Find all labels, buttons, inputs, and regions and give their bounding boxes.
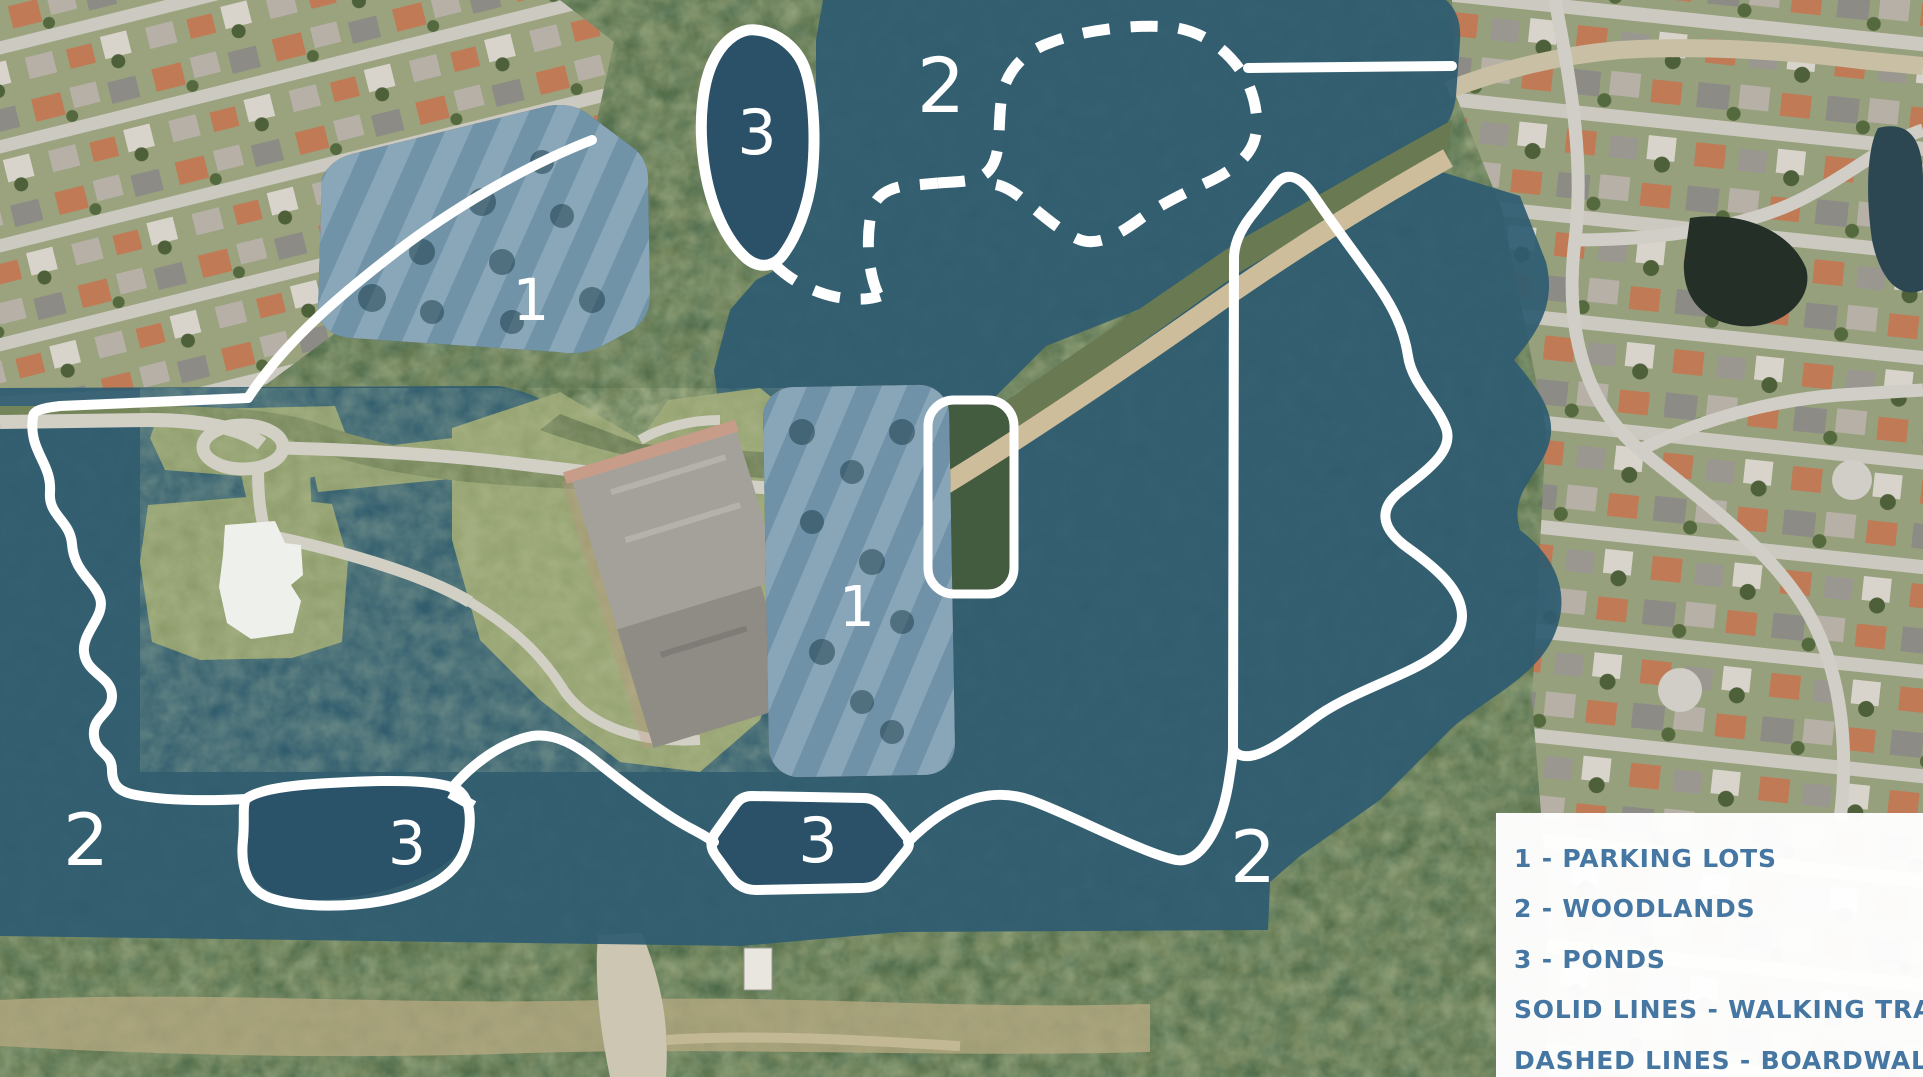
legend-item-woodlands: 2 - WOODLANDS [1514, 884, 1913, 935]
label-woodland-southeast: 2 [1230, 821, 1276, 893]
legend-item-walking-trail: SOLID LINES - WALKING TRAIL [1514, 985, 1913, 1036]
label-woodland-north: 2 [917, 48, 965, 124]
label-pond-north: 3 [737, 102, 776, 164]
small-building [744, 948, 772, 990]
park-trail-map-image: 1 2 3 1 2 3 3 2 1 - PARKING LOTS 2 - WOO… [0, 0, 1923, 1077]
label-parking-lot-north: 1 [513, 271, 550, 329]
legend-item-parking-lots: 1 - PARKING LOTS [1514, 833, 1913, 884]
label-woodland-west: 2 [63, 804, 109, 876]
label-pond-south: 3 [798, 810, 837, 872]
label-parking-lot-central: 1 [839, 580, 875, 636]
label-pond-southwest: 3 [388, 814, 426, 874]
legend-item-boardwalk: DASHED LINES - BOARDWALK [1514, 1035, 1913, 1077]
legend-item-ponds: 3 - PONDS [1514, 934, 1913, 985]
map-legend: 1 - PARKING LOTS 2 - WOODLANDS 3 - PONDS… [1496, 813, 1923, 1077]
trail-access-north [1248, 66, 1452, 68]
